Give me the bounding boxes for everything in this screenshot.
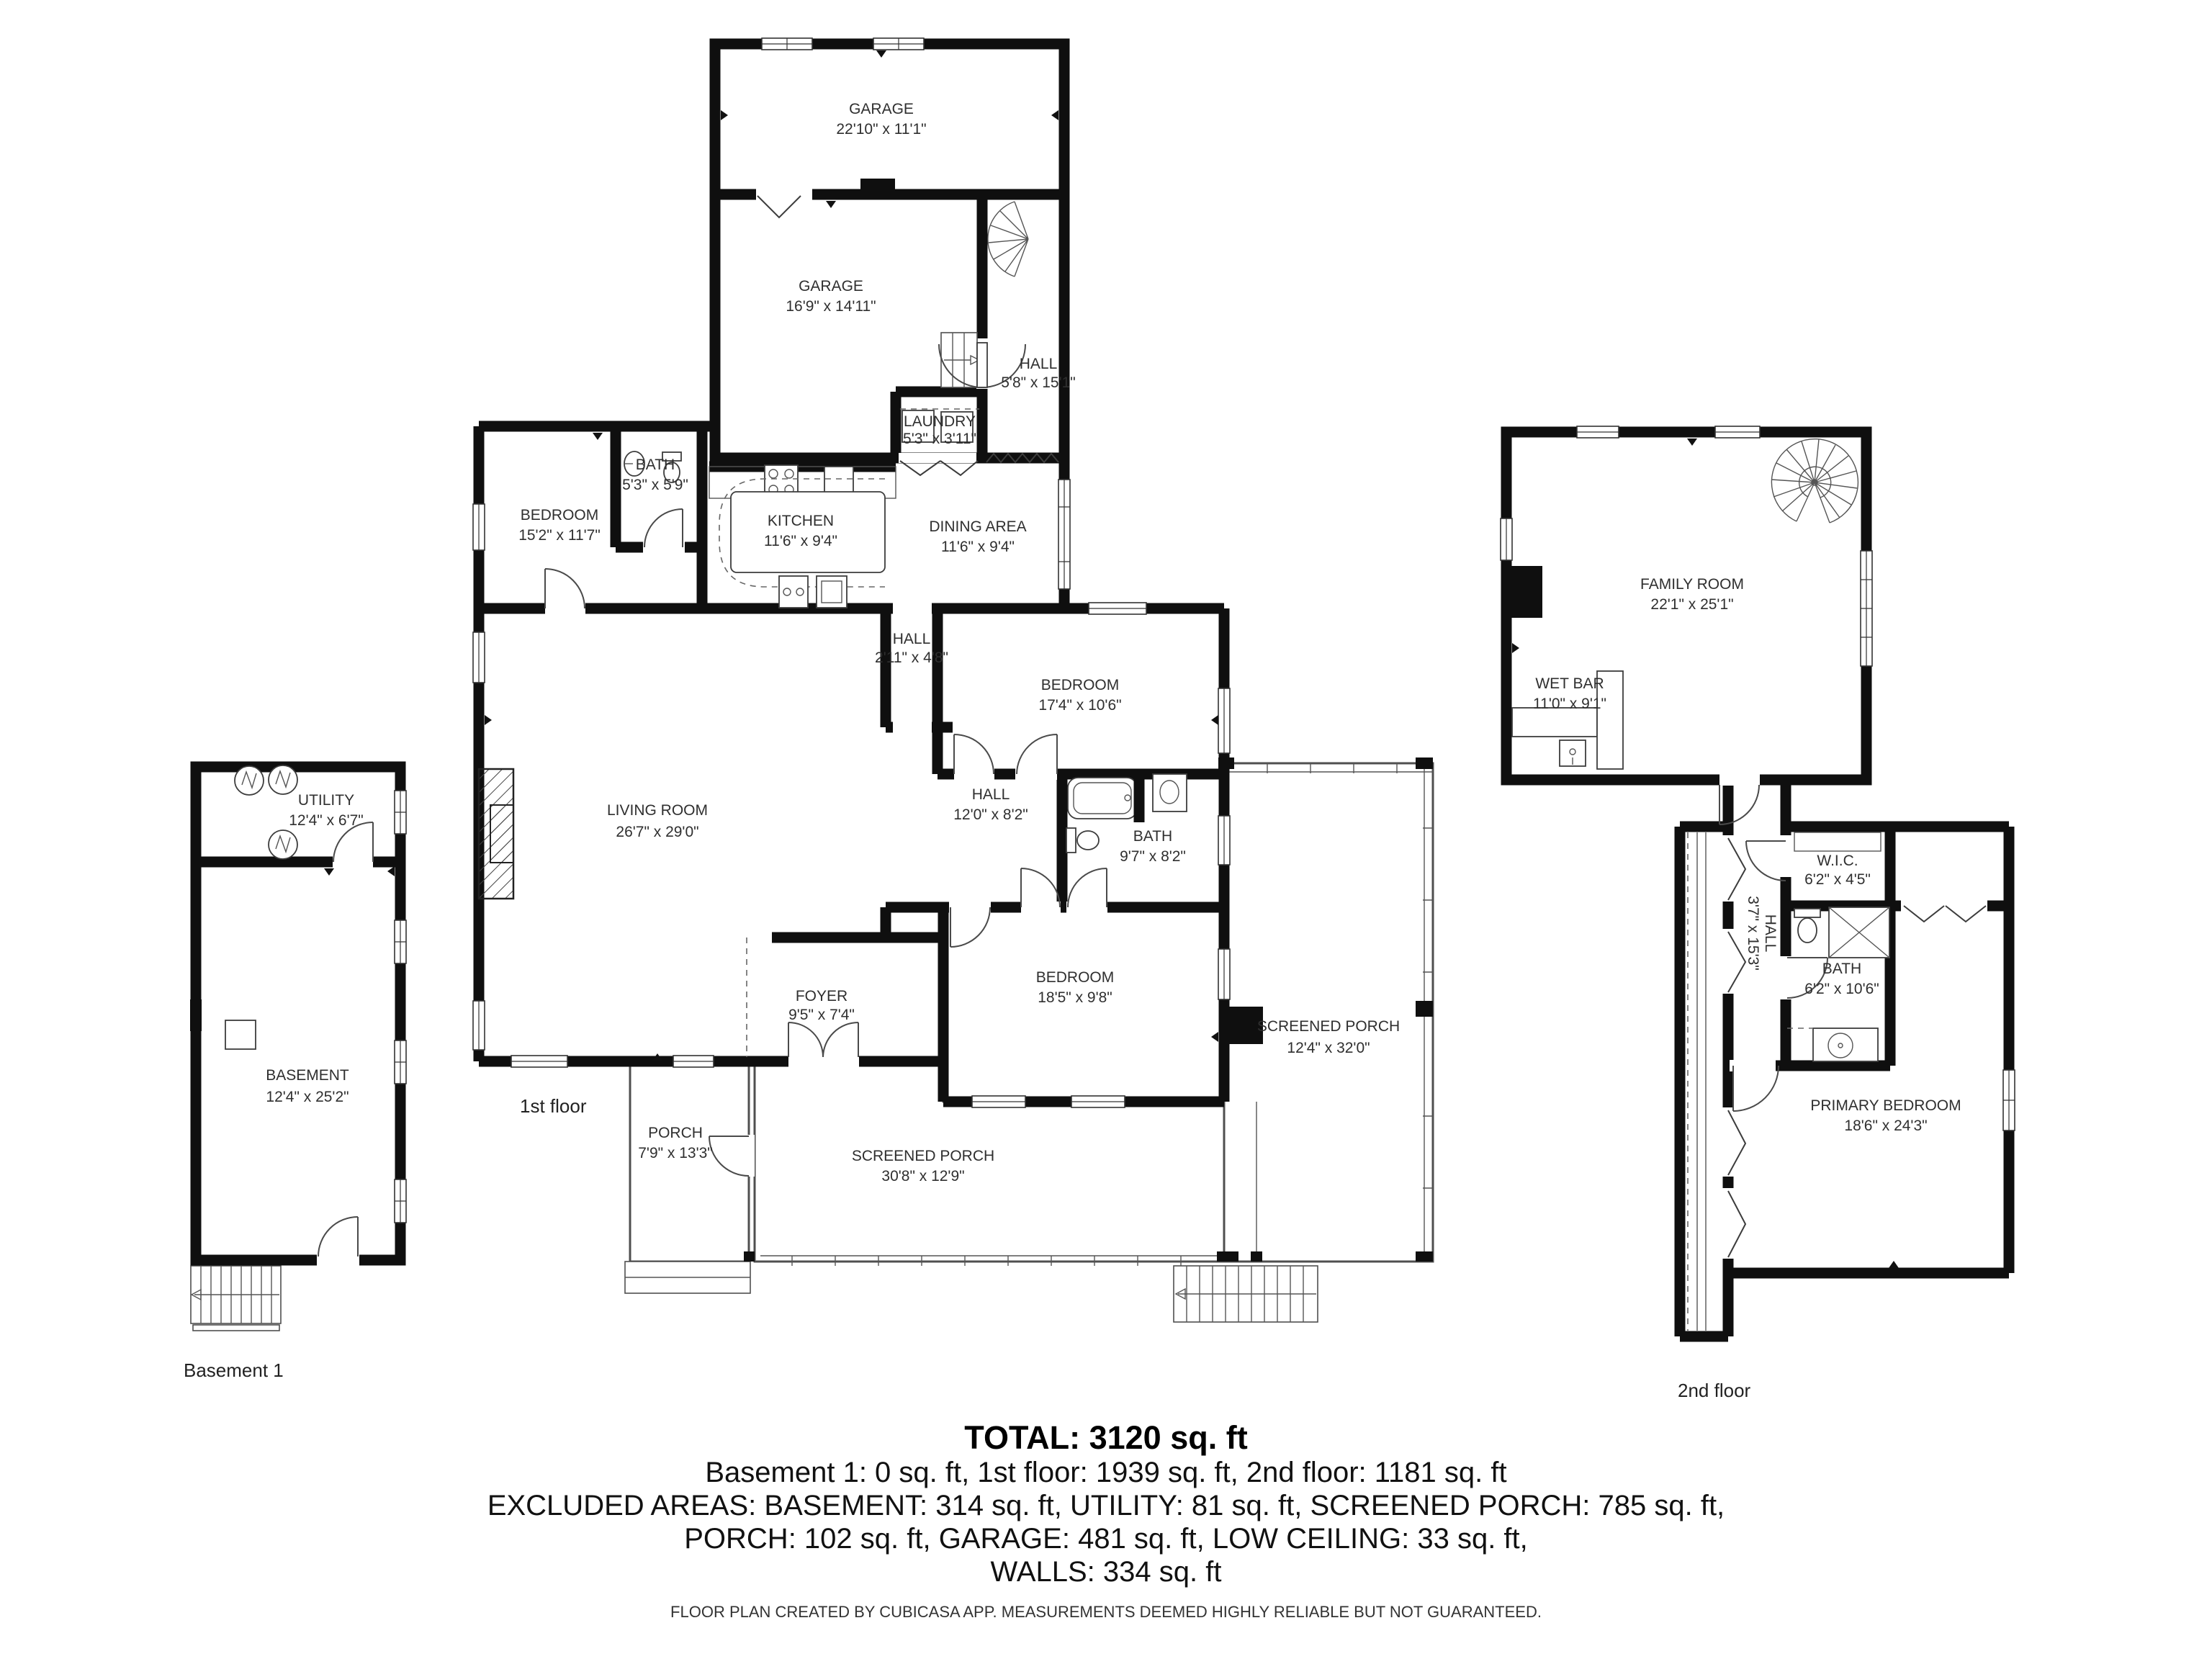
screened-porch-south-structure: [755, 1064, 1256, 1266]
room-label-living: LIVING ROOM: [607, 802, 708, 819]
room-label-primary: PRIMARY BEDROOM: [1810, 1097, 1961, 1114]
room-label-screened-south: SCREENED PORCH: [852, 1148, 994, 1164]
room-label-hall-2nd: HALL: [1762, 914, 1779, 953]
room-dims-wet-bar: 11'0" x 9'1": [1533, 696, 1606, 712]
summary-walls: WALLS: 334 sq. ft: [991, 1556, 1222, 1588]
summary-excluded-1: EXCLUDED AREAS: BASEMENT: 314 sq. ft, UT…: [487, 1490, 1725, 1521]
room-label-foyer: FOYER: [796, 988, 848, 1004]
room-dims-screened-east: 12'4" x 32'0": [1287, 1040, 1370, 1056]
room-label-wic: W.I.C.: [1817, 853, 1858, 869]
garage-door-pier: [860, 179, 895, 194]
room-label-porch: PORCH: [648, 1125, 703, 1141]
room-dims-porch: 7'9" x 13'3": [638, 1145, 713, 1161]
room-dims-screened-south: 30'8" x 12'9": [881, 1168, 964, 1184]
room-dims-kitchen: 11'6" x 9'4": [764, 533, 837, 549]
caption-second-floor: 2nd floor: [1678, 1380, 1751, 1401]
basement-door-icon: [318, 1217, 358, 1256]
basement-outer-walls: [196, 767, 400, 1260]
room-label-hall-upper: HALL: [1020, 356, 1058, 372]
room-label-kitchen: KITCHEN: [768, 513, 834, 529]
room-dims-bath-small: 5'3" x 5'9": [622, 477, 688, 493]
room-label-utility: UTILITY: [298, 792, 354, 809]
screened-porch-stairs-icon: [1174, 1266, 1318, 1322]
room-label-bedroom18: BEDROOM: [1036, 969, 1115, 986]
family-spiral-stair-icon: [1771, 439, 1858, 523]
room-label-bath-2nd: BATH: [1822, 961, 1861, 977]
room-dims-living: 26'7" x 29'0": [616, 824, 698, 840]
floor-plan-canvas: UTILITY 12'4" x 6'7" BASEMENT 12'4" x 25…: [0, 0, 2212, 1659]
furnace-icon: [225, 1020, 256, 1049]
second-floor-walls: [1506, 432, 2009, 1336]
room-label-garage2: GARAGE: [799, 278, 863, 295]
first-floor-plan: GARAGE 22'10" x 11'1" GARAGE 16'9" x 14'…: [473, 38, 1433, 1322]
summary: TOTAL: 3120 sq. ft Basement 1: 0 sq. ft,…: [487, 1419, 1725, 1621]
room-dims-wic: 6'2" x 4'5": [1804, 871, 1871, 888]
garage-stairs-icon: [941, 333, 979, 387]
room-label-bath-small: BATH: [636, 457, 675, 473]
room-label-family: FAMILY ROOM: [1640, 576, 1744, 593]
summary-excluded-2: PORCH: 102 sq. ft, GARAGE: 481 sq. ft, L…: [684, 1523, 1528, 1555]
room-dims-basement: 12'4" x 25'2": [266, 1089, 349, 1105]
hall-spiral-stair-icon: [988, 202, 1028, 276]
room-label-bedroom15: BEDROOM: [521, 507, 599, 523]
summary-floors: Basement 1: 0 sq. ft, 1st floor: 1939 sq…: [705, 1457, 1506, 1488]
room-label-wet-bar: WET BAR: [1535, 675, 1604, 692]
stairwell-column-icon: [1688, 832, 1706, 1331]
room-dims-bedroom18: 18'5" x 9'8": [1038, 989, 1112, 1006]
room-label-hall-small: HALL: [893, 631, 931, 647]
room-dims-bedroom15: 15'2" x 11'7": [518, 527, 601, 544]
floor-plan-page: UTILITY 12'4" x 6'7" BASEMENT 12'4" x 25…: [0, 0, 2212, 1659]
chimney-block: [1506, 566, 1542, 618]
room-dims-family: 22'1" x 25'1": [1650, 596, 1733, 613]
caption-first-floor: 1st floor: [520, 1095, 587, 1117]
room-label-screened-east: SCREENED PORCH: [1257, 1018, 1400, 1035]
room-label-hall12: HALL: [972, 786, 1010, 803]
room-dims-bath97: 9'7" x 8'2": [1120, 848, 1186, 865]
room-dims-garage2: 16'9" x 14'11": [786, 298, 876, 315]
fireplace-icon: [479, 769, 513, 899]
room-dims-utility: 12'4" x 6'7": [289, 812, 364, 829]
basement-plan: UTILITY 12'4" x 6'7" BASEMENT 12'4" x 25…: [184, 765, 406, 1381]
room-label-bath97: BATH: [1133, 828, 1172, 845]
room-label-basement: BASEMENT: [266, 1067, 349, 1084]
porch-structure: [625, 1064, 750, 1293]
room-dims-hall12: 12'0" x 8'2": [953, 806, 1028, 823]
summary-total: TOTAL: 3120 sq. ft: [964, 1419, 1247, 1456]
basement-exterior-stairs-icon: [191, 1266, 281, 1331]
room-label-laundry: LAUNDRY: [904, 413, 976, 430]
footer-disclaimer: FLOOR PLAN CREATED BY CUBICASA APP. MEAS…: [670, 1603, 1542, 1621]
wall-tick-icons: [324, 50, 1899, 1268]
water-heater-icons: [235, 765, 297, 859]
room-label-garage1: GARAGE: [849, 101, 914, 117]
room-label-bedroom17: BEDROOM: [1041, 677, 1120, 693]
room-dims-garage1: 22'10" x 11'1": [836, 121, 926, 138]
room-dims-dining: 11'6" x 9'4": [941, 539, 1015, 555]
room-dims-foyer: 9'5" x 7'4": [788, 1007, 855, 1023]
room-dims-bath-2nd: 6'2" x 10'6": [1804, 981, 1879, 997]
room-dims-laundry: 5'3" x 3'11": [903, 431, 976, 447]
room-label-dining: DINING AREA: [929, 518, 1026, 535]
second-floor-plan: FAMILY ROOM 22'1" x 25'1" WET BAR 11'0" …: [1501, 426, 2015, 1401]
room-dims-primary: 18'6" x 24'3": [1844, 1118, 1927, 1134]
wic-shelf-icon: [1794, 832, 1881, 851]
room-dims-hall-upper: 5'8" x 15'1": [1001, 374, 1076, 391]
basement-wall-pier: [190, 999, 202, 1031]
room-dims-hall-small: 2'11" x 4'8": [875, 649, 948, 666]
room-dims-hall-2nd: 3'7" x 15'3": [1745, 896, 1761, 971]
room-dims-bedroom17: 17'4" x 10'6": [1038, 697, 1121, 714]
caption-basement: Basement 1: [184, 1359, 284, 1381]
